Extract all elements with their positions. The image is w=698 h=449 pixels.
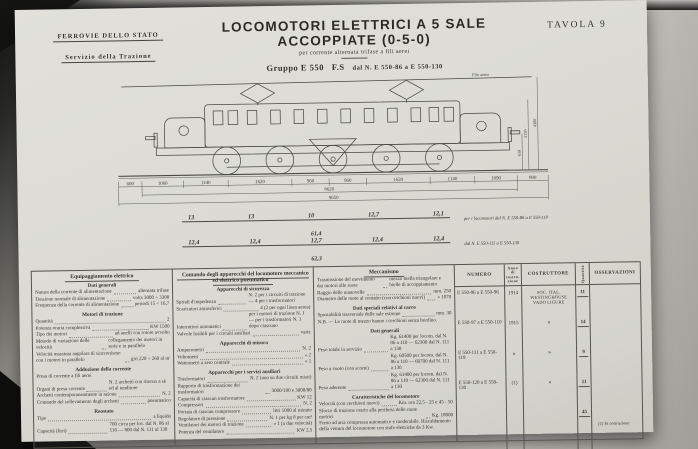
dot-leader <box>383 287 387 288</box>
spec-item-value: » 1070 <box>437 295 451 301</box>
registry-anno: 1914 <box>505 286 522 316</box>
registry-costruttore: Soc. Ital. Westinghouse Vado Ligure <box>522 285 576 316</box>
dot-leader <box>371 370 389 371</box>
dot-leader <box>266 393 270 394</box>
registry-total: 45 <box>578 405 592 421</box>
spec-item: Peso aderenteKg. 61400 per locom. dal N.… <box>318 372 452 392</box>
dot-leader <box>232 364 303 366</box>
dot-leader <box>102 349 106 350</box>
registry-filler <box>524 421 578 449</box>
spec-item-label: Valvole fusibili per i circuiti ausiliar… <box>177 331 251 338</box>
registry-quantita: 14 <box>577 315 591 345</box>
spec-item-value: » 2 <box>305 353 311 359</box>
spec-item: Wattometri a zero centrale» 1 <box>177 360 311 368</box>
spec-item-value: giri 220 ÷ 260 al m' <box>131 356 170 363</box>
spec-item-label: Amperometri <box>177 348 204 355</box>
spec-column-mechanism: MeccanismoTrasmissione del movimento dai… <box>314 265 458 443</box>
spec-item-value: KW 2,5 <box>297 428 313 434</box>
spec-item-label: Sforzo di trazione orario alla periferia… <box>319 407 424 421</box>
spec-item-label: Voltometri <box>177 355 198 361</box>
spec-item-label: Peso aderente <box>319 386 347 393</box>
axle-load-value: 13 <box>248 213 254 220</box>
spec-item: Organi di presa correnteN. 2 archetti co… <box>36 379 170 393</box>
dot-leader <box>121 306 133 307</box>
spec-column-header: Equipaggiamento elettrico <box>35 273 169 281</box>
dot-leader <box>121 403 145 404</box>
svg-text:1090: 1090 <box>491 176 501 181</box>
spec-item-label: Capacità di ciascun trasformatore <box>178 396 245 403</box>
dot-leader <box>227 420 267 422</box>
spec-item-value: alternata trifase <box>138 289 169 296</box>
svg-text:960: 960 <box>344 179 352 184</box>
registry-osservazioni <box>591 344 641 375</box>
document-header: FERROVIE DELLO STATO Servizio della Traz… <box>15 0 648 77</box>
registry-quantita: 9 <box>577 345 591 375</box>
spec-item-label: Capacità (litri) <box>37 429 66 436</box>
svg-text:1140: 1140 <box>448 177 458 182</box>
spec-item-value: varie <box>301 330 311 336</box>
spec-column-apparatus: Comando degli apparecchi del locomotore … <box>173 267 317 445</box>
spec-item-label: Potenza del ventilatore <box>178 429 224 436</box>
wire-label: Filo aereo <box>472 72 489 77</box>
spec-item-label: Freno ad aria compressa automatico e mod… <box>319 419 453 433</box>
registry-total-value: 45 <box>579 410 590 417</box>
registry-quantita: 11 <box>576 285 590 315</box>
dot-leader <box>247 399 295 401</box>
spec-item-label: Portata di ciascun compressore <box>178 409 240 416</box>
spec-item: Trasmissione del movimento dai motori al… <box>317 276 451 290</box>
spec-item-value: N. 2 <box>303 402 312 408</box>
dot-leader <box>92 329 148 331</box>
spec-item-label: Compressori <box>178 403 204 409</box>
dot-leader <box>403 316 435 317</box>
svg-text:1620: 1620 <box>393 178 403 183</box>
registry-osservazioni <box>590 284 640 315</box>
axle-load-value: 10 <box>308 212 314 219</box>
registry-quantita: 11 <box>577 375 591 405</box>
svg-text:9650: 9650 <box>329 196 339 201</box>
spec-item-value: 2 <box>167 318 170 324</box>
svg-text:4300: 4300 <box>532 119 537 128</box>
spec-item-label: Trasformatori <box>177 377 205 384</box>
group-number-range: dal N. E 550-86 a E 550-130 <box>352 63 442 71</box>
spec-item-value: N. 2 <box>302 347 311 353</box>
dot-leader <box>246 426 272 427</box>
spec-item-value: 700 circa per loc. dal N. 86 al 110 — 80… <box>110 421 172 434</box>
registry-costruttore: » <box>523 315 577 346</box>
registry-osservazioni <box>591 314 641 345</box>
spec-item-value: mezzo biella triangolare e bielle di acc… <box>389 276 451 289</box>
svg-text:800: 800 <box>529 176 537 181</box>
spec-item-value: Kg. 61400 per locom. dal N. 86 a 110 — 6… <box>390 334 452 353</box>
dot-leader <box>207 381 248 383</box>
spec-item-label: Wattometri a zero centrale <box>177 361 230 368</box>
registry-header-osservazioni: OSSERVAZIONI <box>590 262 640 285</box>
spec-item-value: a liquido <box>153 414 171 420</box>
drawing-area: 600 1060 1140 1620 960 960 1620 1140 109… <box>16 68 650 217</box>
spec-item-value: » 1 <box>305 360 311 366</box>
spec-item-value: Kg. 61400 per locom. dal N. 86 a 110 — 6… <box>391 372 453 391</box>
spec-item-label: N.B. — Le ruote di mezzo hanno i cerchio… <box>318 318 438 326</box>
registry-anno: (1) <box>506 376 523 406</box>
dot-leader <box>87 390 107 391</box>
registry-header-anno: Anno di costru- zione <box>505 264 522 286</box>
spec-item-label: Velocità massima angolare di sincronismo… <box>36 351 123 365</box>
axle-load-value: 12,4 <box>372 236 383 243</box>
spec-item: Peso a vuoto (con scorte)Kg. 60500 per l… <box>318 353 452 373</box>
axle-load-note: dal N. E 550-111 a E 550-130 <box>464 238 654 246</box>
group-fs: F.S <box>332 62 345 72</box>
spec-item-value: Kg. 18000 <box>432 413 453 419</box>
spec-item: Freno ad aria compressa automatico e mod… <box>319 419 453 433</box>
organization-department: Servizio della Trazione <box>61 53 155 63</box>
group-name: Gruppo E 550 <box>266 62 324 73</box>
organization-name: FERROVIE DELLO STATO <box>53 32 162 43</box>
registry-spacer <box>592 404 642 421</box>
spec-item: Interruttori automaticiper i motori di t… <box>176 312 310 332</box>
spec-item-value: per i motori di trazione N. 1 — per i tr… <box>249 312 311 331</box>
spec-item-label: Presa di corrente a fili aerei <box>36 374 91 381</box>
dot-leader <box>114 293 136 294</box>
spec-item: Potenza del ventilatoreKW 2,5 <box>178 428 312 436</box>
registry-quantita-value: 14 <box>578 320 589 327</box>
spec-item-value: collegamento dei motori in serie e in pa… <box>108 338 170 351</box>
registry-header-numero: NUMERO <box>455 264 505 287</box>
dot-leader <box>364 352 388 353</box>
registry-filler <box>578 421 592 449</box>
spec-item: Peso totale in servizioKg. 61400 per loc… <box>318 334 452 354</box>
spec-item: Frequenza della corrente di alimentazion… <box>35 302 169 310</box>
spec-item: Comando del sollevamento degli archettip… <box>37 398 171 406</box>
dot-leader <box>426 417 430 418</box>
spec-item-label: Diametro delle ruote al contatto (con ce… <box>317 296 425 304</box>
spec-item-label: Frequenza della corrente di alimentazion… <box>35 303 119 310</box>
spec-item-label: Tipo <box>37 416 46 422</box>
spec-column-header-text: Equipaggiamento elettrico <box>65 273 138 282</box>
svg-text:1060: 1060 <box>158 182 168 187</box>
registry-filler <box>507 422 524 449</box>
axle-load-value: 12,4 <box>249 238 260 245</box>
registry-spacer <box>524 405 578 422</box>
spec-item-value: N. 2 per i circuiti di trazione — 4 per … <box>249 292 311 305</box>
dot-leader <box>69 336 113 338</box>
registry-header-costruttore: COSTRUTTORE <box>522 263 576 286</box>
spec-item-value: mm. 30 <box>436 312 451 318</box>
svg-text:960: 960 <box>307 179 315 184</box>
registry-quantita-value: 11 <box>577 290 588 297</box>
registry-quantita-value: 11 <box>579 380 590 387</box>
registry-costruttore: » <box>523 345 577 376</box>
dot-leader <box>224 310 258 312</box>
spec-column-header-text: Comando degli apparecchi del locomotore … <box>177 270 309 286</box>
spec-item-label: Rapporto di trasformazione dei trasforma… <box>178 383 264 397</box>
spec-item-value: KW 1500 <box>150 324 170 330</box>
spec-item-value: volts 3000 ÷ 3300 <box>133 295 169 302</box>
axle-load-value: 12,7 <box>368 211 379 218</box>
registry-osservazioni <box>591 374 641 405</box>
photo-of-document: FERROVIE DELLO STATO Servizio della Traz… <box>0 0 698 449</box>
registry-spacer <box>507 406 524 422</box>
spec-item-label: Quantità <box>36 320 53 326</box>
spec-item: N.B. — Le ruote di mezzo hanno i cerchio… <box>318 318 452 326</box>
axle-load-value: 13 <box>188 214 194 221</box>
spec-item-label: Metodo di variazione delle velocità <box>36 339 101 352</box>
spec-item: Rapporto di trasformazione dei trasforma… <box>178 382 312 396</box>
spec-item: Metodo di variazione delle velocitàcolle… <box>36 338 170 352</box>
locomotive-side-view-drawing: 600 1060 1140 1620 960 960 1620 1140 109… <box>97 69 569 210</box>
registry-numero: E 550-86 a E 550-96 <box>455 286 505 317</box>
spec-item-label: Tipo dei motori <box>36 333 67 340</box>
dot-leader <box>125 361 129 362</box>
axle-load-value: 12,4 <box>188 239 199 246</box>
spec-item-label: Potenza oraria complessiva <box>36 326 91 333</box>
spec-item-value: KW 12 <box>297 395 312 401</box>
spec-item: Capacità (litri)700 circa per loc. dal N… <box>37 421 171 435</box>
spec-item-label: Peso totale in servizio <box>318 348 362 355</box>
registry-spacer <box>457 406 507 423</box>
svg-text:600: 600 <box>127 182 135 187</box>
organization-block: FERROVIE DELLO STATO Servizio della Traz… <box>29 20 188 67</box>
axle-load-note: per i locomotori dal N. E 550-86 a E 550… <box>464 213 654 221</box>
svg-text:1140: 1140 <box>201 181 211 186</box>
dot-leader <box>427 300 435 301</box>
builder-registry-table: NUMERO Anno di costru- zione COSTRUTTORE… <box>455 262 643 441</box>
registry-filler <box>457 422 507 449</box>
spec-item: Diametro delle ruote al contatto (con ce… <box>317 295 451 303</box>
spec-item-label: Peso a vuoto (con scorte) <box>318 367 369 374</box>
svg-text:8620: 8620 <box>324 188 334 193</box>
plate-number: TAVOLA 9 <box>521 13 633 31</box>
spec-item-value: pneumatico <box>147 398 170 404</box>
registry-numero: E 550-97 a E 550-110 <box>456 316 506 347</box>
dot-leader <box>226 432 294 434</box>
spec-item: Valvole fusibili per i circuiti ausiliar… <box>177 330 311 338</box>
spec-item-label: Ventilatori dei motori di trazione <box>178 423 244 430</box>
registry-anno: » <box>506 346 523 376</box>
spec-item-value: mm. 250 <box>433 289 451 295</box>
registry-numero: E 550-111 a E 550-119 <box>456 346 506 377</box>
document-sheet: FERROVIE DELLO STATO Servizio della Traz… <box>15 0 654 442</box>
dot-leader <box>69 432 108 434</box>
axle-load-value: 12,1 <box>433 210 444 217</box>
spec-item: Velocità massima angolare di sincronismo… <box>36 350 170 364</box>
dot-leader <box>253 335 299 337</box>
registry-footnote: (1) In costruzione <box>592 420 642 449</box>
spec-item-label: Scaricatori atmosferici <box>176 306 221 313</box>
spec-item-value: Kg. 60500 per locom. dal N. 86 a 110 — 6… <box>390 353 452 372</box>
dot-leader <box>382 405 397 406</box>
spec-table: Equipaggiamento elettricoDati generaliNa… <box>31 261 644 449</box>
ornament-divider <box>341 57 367 58</box>
page-title: LOCOMOTORI ELETTRICI A 5 SALE ACCOPPIATE… <box>187 15 521 50</box>
spec-item-value: N. 2 (uno su due circuiti misti) <box>250 376 312 383</box>
title-block: LOCOMOTORI ELETTRICI A 5 SALE ACCOPPIATE… <box>187 15 522 74</box>
spec-column-electric-equipment: Equipaggiamento elettricoDati generaliNa… <box>32 270 176 448</box>
registry-numero: E 550-120 a E 550-130 <box>456 376 506 407</box>
spec-item-value: Km. ora 22,5 - 25 e 45 - 50 <box>398 400 453 407</box>
dot-leader <box>218 304 247 305</box>
svg-text:3150: 3150 <box>523 130 528 139</box>
spec-column-header: Comando degli apparecchi del locomotore … <box>176 270 310 284</box>
registry-costruttore: » <box>523 375 577 406</box>
spec-item-label: Comando del sollevamento degli archetti <box>37 399 119 406</box>
spec-item-value: N. 2 archetti con ritorno a sè ed al ten… <box>109 379 171 392</box>
registry-header-quantita: Quantità <box>576 263 590 285</box>
axle-load-value: 12,4 <box>433 235 444 242</box>
spec-column-header: Meccanismo <box>317 268 451 276</box>
dot-leader <box>348 389 389 391</box>
registry-anno: 1915 <box>506 316 523 346</box>
dot-leader <box>107 300 131 301</box>
svg-text:630: 630 <box>517 150 522 156</box>
svg-text:1620: 1620 <box>255 180 265 185</box>
dot-leader <box>119 396 161 398</box>
spec-item-value: N. 2 <box>162 392 171 398</box>
dot-leader <box>223 329 247 330</box>
spec-item-value: periodi 15 ÷ 16,7 <box>135 302 170 309</box>
registry-quantita-value: 9 <box>579 350 588 357</box>
axle-load-value: 12,7 <box>311 237 322 244</box>
spec-item-label: Trasmissione del movimento dai motori al… <box>317 277 382 290</box>
axle-load-block: 13131012,712,1per i locomotori dal N. E … <box>54 208 615 267</box>
dot-leader <box>242 413 271 414</box>
